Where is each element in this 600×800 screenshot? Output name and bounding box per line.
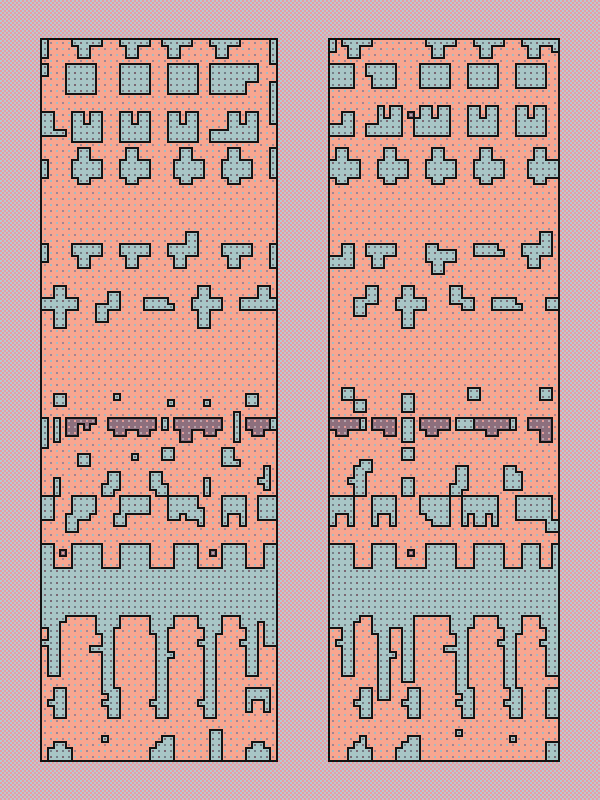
checker-background: { "scene": {"width":600,"height":800}, "… bbox=[0, 0, 600, 800]
left-pattern-panel bbox=[40, 38, 278, 762]
right-pattern-panel bbox=[328, 38, 560, 762]
